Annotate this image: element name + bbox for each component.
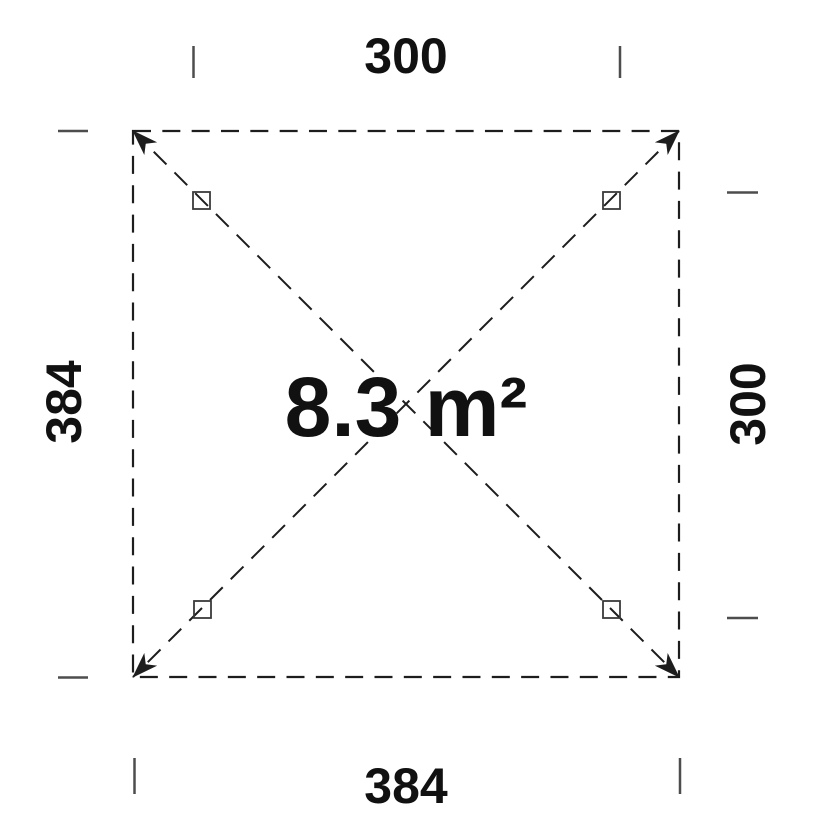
dimension-label-left: 384	[36, 360, 92, 444]
dimension-label-top: 300	[364, 28, 447, 84]
floor-plan-canvas: 300 384 384 300 8.3 m²	[0, 0, 828, 828]
dimension-label-bottom: 384	[364, 758, 448, 814]
post-square-top-right	[603, 192, 620, 209]
floor-plan-drawing: 300 384 384 300 8.3 m²	[0, 0, 828, 828]
post-square-bottom-left	[194, 601, 211, 618]
dimension-label-right: 300	[720, 362, 776, 445]
area-label: 8.3 m²	[285, 360, 528, 454]
